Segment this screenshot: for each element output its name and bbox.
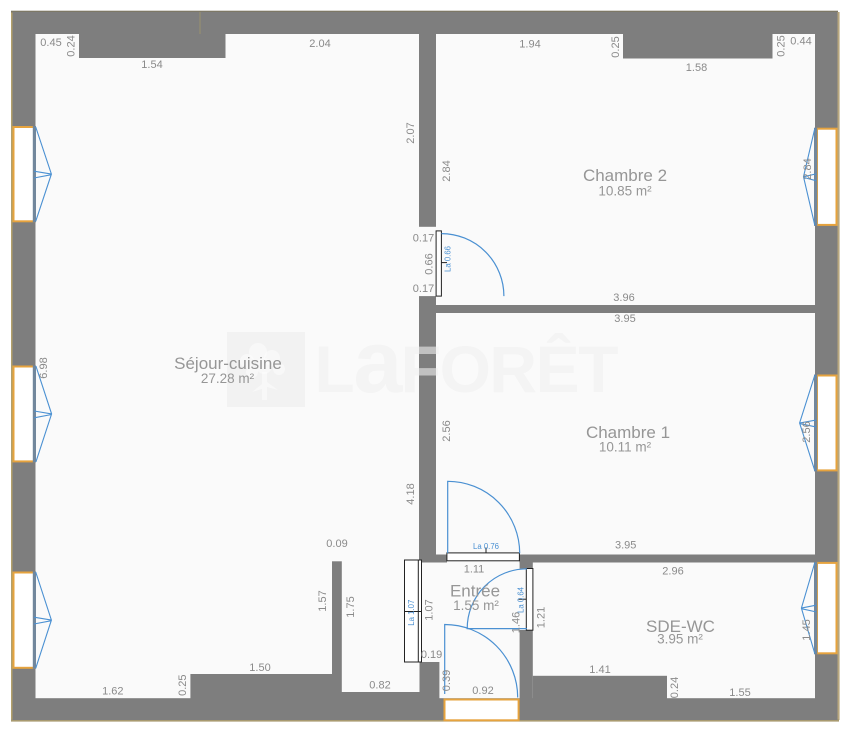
svg-text:4.18: 4.18 — [405, 483, 417, 504]
svg-text:1.94: 1.94 — [519, 39, 540, 51]
svg-text:0.17: 0.17 — [413, 233, 434, 245]
svg-text:2.84: 2.84 — [802, 158, 814, 179]
svg-text:1.75: 1.75 — [345, 596, 357, 617]
svg-text:1.55 m²: 1.55 m² — [453, 598, 499, 613]
svg-text:0.25: 0.25 — [177, 674, 189, 695]
svg-text:0.25: 0.25 — [776, 35, 788, 56]
svg-text:2.84: 2.84 — [441, 160, 453, 181]
svg-text:2.07: 2.07 — [405, 122, 417, 143]
svg-text:Chambre 2: Chambre 2 — [583, 166, 667, 185]
svg-text:0.82: 0.82 — [369, 680, 390, 692]
svg-text:2.56: 2.56 — [441, 420, 453, 441]
svg-text:6.98: 6.98 — [38, 357, 50, 378]
svg-text:1.46: 1.46 — [511, 612, 523, 633]
svg-text:1.41: 1.41 — [589, 664, 610, 676]
svg-text:3.95 m²: 3.95 m² — [657, 632, 703, 647]
svg-text:10.85 m²: 10.85 m² — [598, 184, 652, 199]
svg-text:La 1.07: La 1.07 — [407, 600, 416, 626]
svg-text:3.95: 3.95 — [614, 313, 635, 325]
svg-text:1.57: 1.57 — [317, 590, 329, 611]
svg-text:1.54: 1.54 — [141, 59, 162, 71]
svg-text:2.96: 2.96 — [662, 566, 683, 578]
svg-text:3.95: 3.95 — [615, 540, 636, 552]
svg-text:0.25: 0.25 — [610, 36, 622, 57]
svg-text:La 0.64: La 0.64 — [516, 586, 525, 613]
svg-text:0.09: 0.09 — [326, 538, 347, 550]
svg-text:0.39: 0.39 — [441, 670, 453, 691]
svg-text:2.56: 2.56 — [801, 421, 813, 442]
svg-text:0.17: 0.17 — [413, 283, 434, 295]
svg-text:0.19: 0.19 — [421, 649, 442, 661]
svg-text:3.96: 3.96 — [613, 292, 634, 304]
svg-text:1.11: 1.11 — [464, 564, 485, 576]
svg-text:0.92: 0.92 — [472, 685, 493, 697]
svg-text:1.45: 1.45 — [801, 619, 813, 640]
svg-text:1.21: 1.21 — [536, 607, 548, 628]
svg-text:La 0.76: La 0.76 — [473, 542, 499, 551]
svg-text:La 0.66: La 0.66 — [444, 246, 453, 272]
svg-text:1.50: 1.50 — [249, 662, 270, 674]
svg-text:27.28 m²: 27.28 m² — [201, 371, 255, 386]
svg-text:1.62: 1.62 — [102, 686, 123, 698]
svg-text:1.07: 1.07 — [424, 599, 436, 620]
svg-text:0.45: 0.45 — [40, 37, 61, 49]
svg-text:1.55: 1.55 — [729, 687, 750, 699]
svg-text:2.04: 2.04 — [309, 38, 330, 50]
svg-text:1.58: 1.58 — [686, 62, 707, 74]
svg-text:0.24: 0.24 — [669, 677, 681, 698]
svg-text:0.44: 0.44 — [790, 36, 811, 48]
svg-text:0.24: 0.24 — [66, 35, 78, 56]
svg-text:10.11 m²: 10.11 m² — [599, 440, 652, 455]
svg-text:0.66: 0.66 — [424, 253, 436, 274]
